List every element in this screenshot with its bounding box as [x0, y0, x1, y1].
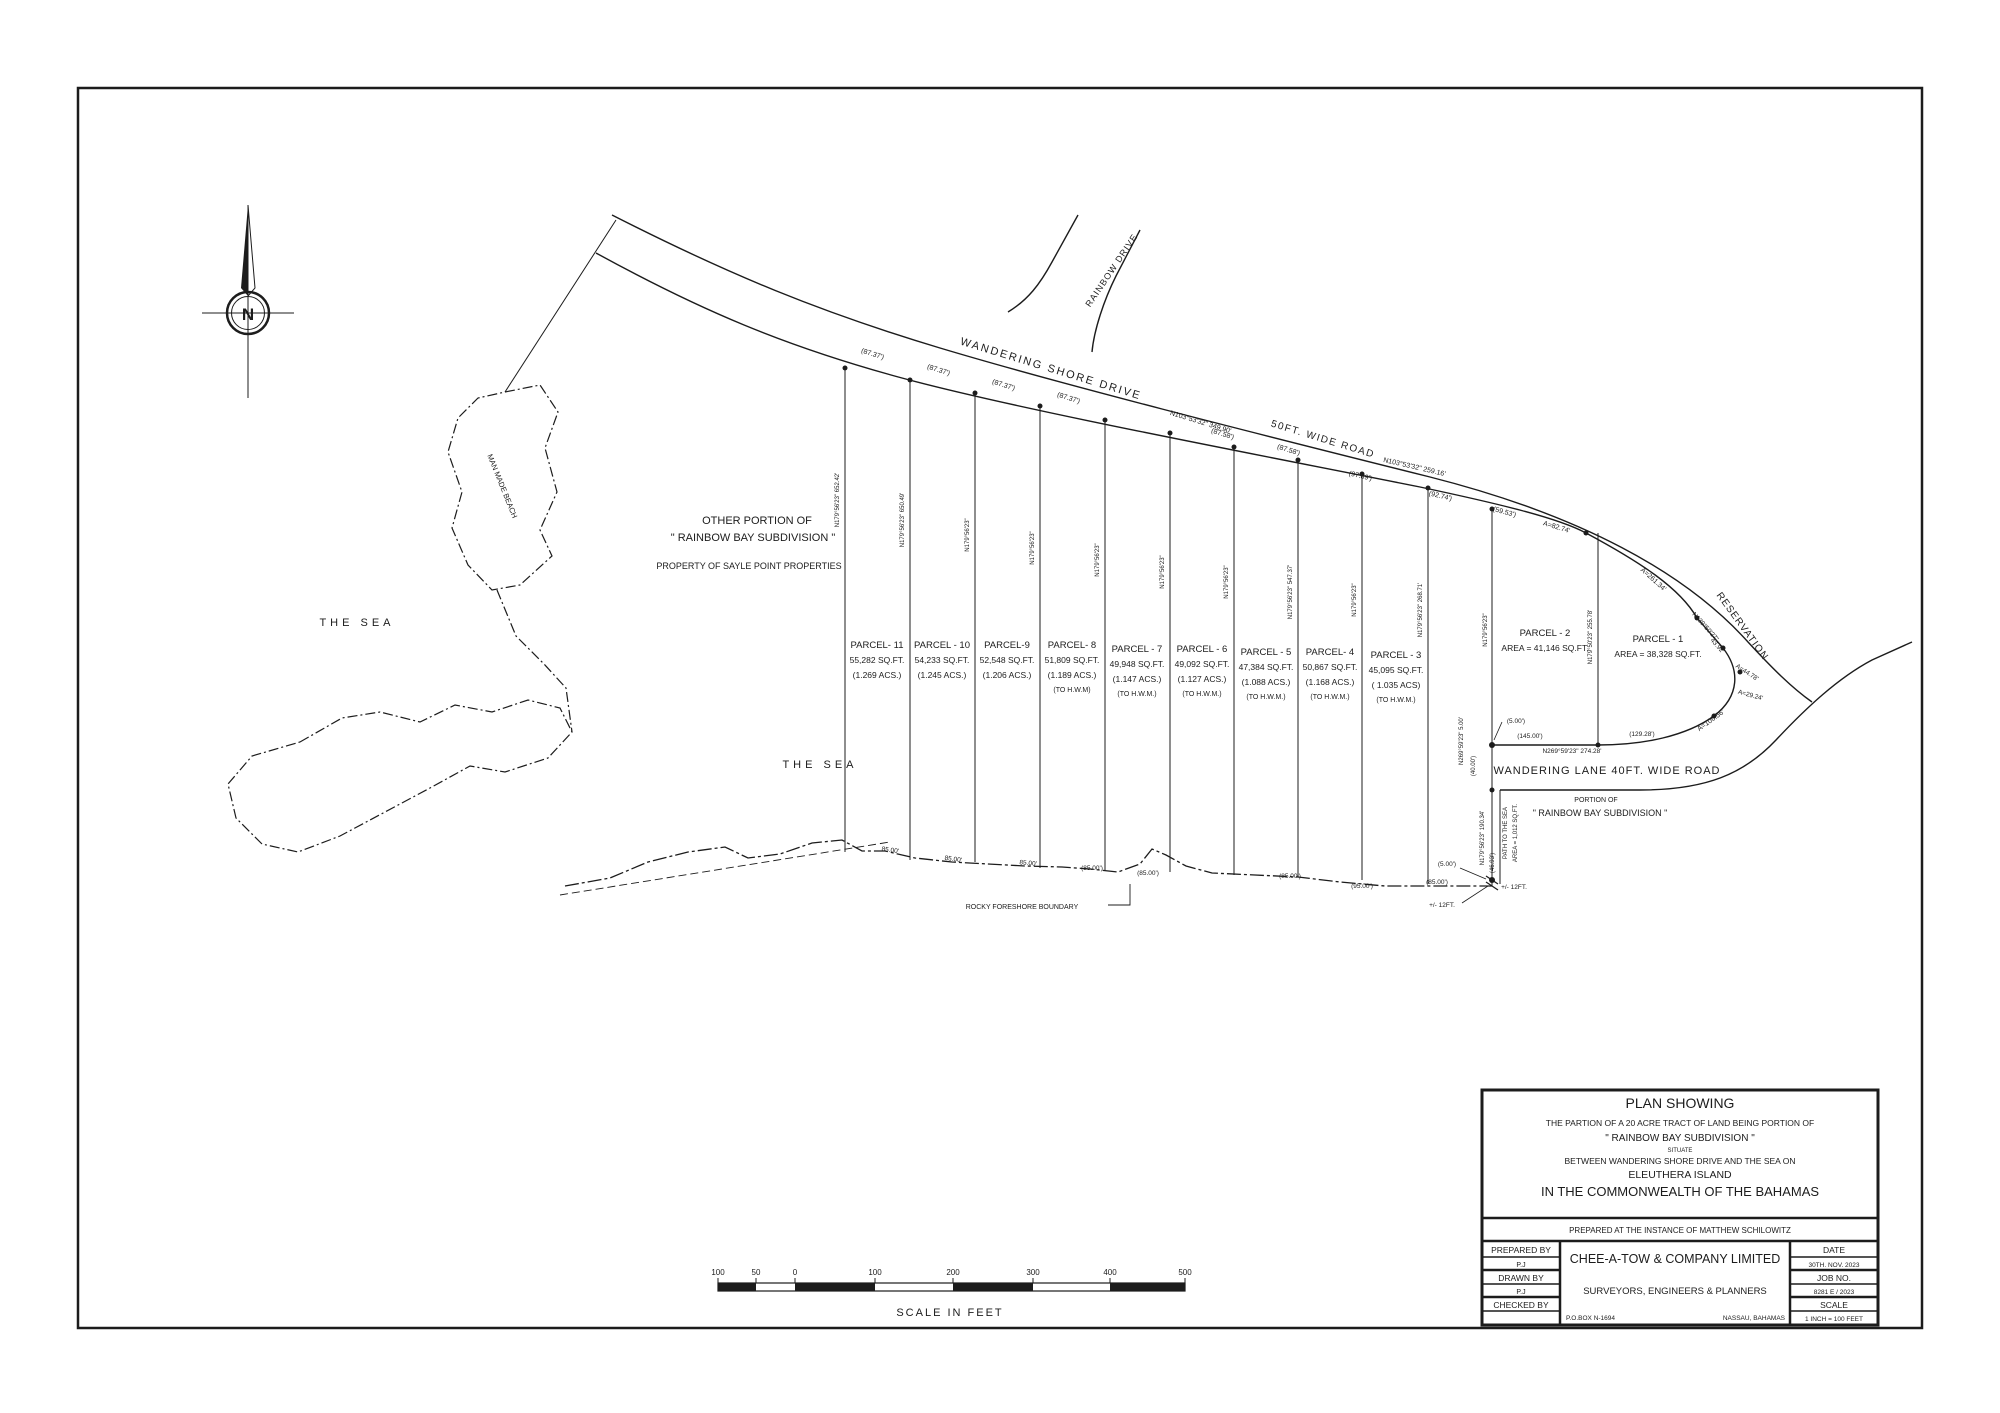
portion-subdivision-label: " RAINBOW BAY SUBDIVISION "	[1533, 808, 1668, 818]
parcel-area: 47,384 SQ.FT.	[1239, 662, 1294, 672]
parcel-label-block: PARCEL - 345,095 SQ.FT.( 1.035 ACS)(TO H…	[1369, 650, 1424, 704]
frontage-dim: (87.58')	[1276, 444, 1301, 458]
parcel-label-block: PARCEL- 450,867 SQ.FT.(1.168 ACS.)(TO H.…	[1303, 647, 1358, 701]
title-line3: SITUATE	[1668, 1148, 1693, 1154]
side-bearing: N179°56'23"	[1030, 531, 1036, 564]
parcel-area: AREA = 38,328 SQ.FT.	[1614, 649, 1701, 659]
parcel-name: PARCEL - 6	[1177, 644, 1228, 655]
parcel-label-block: PARCEL- 851,809 SQ.FT.(1.189 ACS.)(TO H.…	[1045, 640, 1100, 694]
scale-tick-label: 300	[1026, 1268, 1040, 1277]
side-bearing: N179°56'23" 650.49'	[900, 493, 906, 548]
lane-end-bearing: N269°59'23" 5.00'	[1459, 717, 1465, 765]
path-bearing: N179°56'23" 190.34'	[1480, 811, 1486, 866]
title-line5: ELEUTHERA ISLAND	[1628, 1169, 1732, 1181]
parcel-hwm-note: (TO H.W.M.)	[1182, 691, 1221, 698]
title-block: PLAN SHOWING THE PARTION OF A 20 ACRE TR…	[1482, 1090, 1878, 1325]
company-name: CHEE-A-TOW & COMPANY LIMITED	[1570, 1252, 1780, 1266]
scale-value: 1 INCH = 100 FEET	[1805, 1316, 1863, 1323]
title-line2: " RAINBOW BAY SUBDIVISION "	[1605, 1133, 1755, 1144]
shore-dim: 85.00'	[881, 846, 899, 855]
other-portion-line1: OTHER PORTION OF	[702, 515, 812, 527]
parcel-hwm-note: (TO H.W.M.)	[1376, 697, 1415, 704]
parcel-area: 49,092 SQ.FT.	[1175, 659, 1230, 669]
lane-dim: (5.00')	[1507, 718, 1525, 725]
parcel-area: 51,809 SQ.FT.	[1045, 655, 1100, 665]
date-value: 30TH. NOV. 2023	[1808, 1262, 1859, 1269]
lane-dim: (129.28')	[1629, 731, 1654, 738]
side-bearing: N179°56'23" 547.37'	[1288, 565, 1294, 620]
parcel-area: 52,548 SQ.FT.	[980, 655, 1035, 665]
frontage-dim: (87.37')	[860, 348, 885, 362]
shore-dim: (85.00')	[1426, 879, 1448, 886]
parcel-hwm-note: (TO H.W.M.)	[1117, 691, 1156, 698]
rocky-foreshore-leader	[1108, 884, 1130, 905]
instance-note: PREPARED AT THE INSTANCE OF MATTHEW SCHI…	[1569, 1226, 1791, 1235]
shore-note: +/- 12FT.	[1429, 902, 1455, 909]
parcel-acres: (1.189 ACS.)	[1048, 670, 1097, 680]
side-bearing: N179°56'23"	[1352, 583, 1358, 616]
parcel-labels: PARCEL- 1155,282 SQ.FT.(1.269 ACS.)PARCE…	[850, 628, 1702, 704]
parcel-acres: (1.269 ACS.)	[853, 670, 902, 680]
parcel-area: 45,095 SQ.FT.	[1369, 665, 1424, 675]
parcel-acres: (1.088 ACS.)	[1242, 677, 1291, 687]
compass-needle-left	[241, 205, 248, 296]
survey-points	[843, 366, 1743, 884]
tract-west-boundary	[505, 220, 616, 392]
scale-bar: 100500100200300400500 SCALE IN FEET	[711, 1268, 1192, 1319]
parcel-area: 50,867 SQ.FT.	[1303, 662, 1358, 672]
job-no-label: JOB NO.	[1817, 1273, 1851, 1283]
prepared-by-value: P.J	[1516, 1262, 1525, 1269]
portion-of-label: PORTION OF	[1574, 797, 1617, 804]
parcel-area: AREA = 41,146 SQ.FT.	[1501, 643, 1588, 653]
parcel-name: PARCEL-9	[984, 640, 1030, 651]
chord-dim: 43.92'	[1709, 637, 1726, 655]
scale-bar-filled-segments	[718, 1283, 1185, 1291]
parcel-label-block: PARCEL - 749,948 SQ.FT.(1.147 ACS.)(TO H…	[1110, 644, 1165, 698]
side-bearing: N179°56'23"	[965, 518, 971, 551]
parcel-label-block: PARCEL - 1054,233 SQ.FT.(1.245 ACS.)	[914, 640, 970, 680]
parcel-acres: ( 1.035 ACS)	[1372, 680, 1421, 690]
shore-dim: (95.00')	[1351, 883, 1373, 890]
side-bearing: N179°56'23"	[1095, 543, 1101, 576]
parcel-label-block: PARCEL - 1AREA = 38,328 SQ.FT.	[1614, 634, 1701, 659]
parcel-area: 54,233 SQ.FT.	[915, 655, 970, 665]
date-label: DATE	[1823, 1245, 1845, 1255]
job-no-value: 8281 E / 2023	[1814, 1289, 1855, 1296]
side-bearing: N179°56'23"	[1160, 555, 1166, 588]
side-bearing: N179°56'23" 652.42'	[835, 473, 841, 528]
parcel-name: PARCEL - 1	[1633, 634, 1684, 645]
chord-bearing: N139°50'27"	[1690, 611, 1721, 644]
title-line4: BETWEEN WANDERING SHORE DRIVE AND THE SE…	[1565, 1156, 1796, 1166]
wandering-shore-drive-label: WANDERING SHORE DRIVE	[959, 336, 1143, 403]
the-sea-label: THE SEA	[782, 759, 857, 771]
frontage-dim: (87.37')	[1056, 392, 1081, 406]
sayle-point-label: PROPERTY OF SAYLE POINT PROPERTIES	[656, 561, 841, 571]
the-sea-label: THE SEA	[319, 617, 394, 629]
parcel-acres: (1.206 ACS.)	[983, 670, 1032, 680]
scale-tick-label: 500	[1178, 1268, 1192, 1277]
side-bearing: N179°50'23" 255.78'	[1588, 610, 1594, 665]
parcel-name: PARCEL- 11	[851, 640, 904, 651]
parcel-acres: (1.147 ACS.)	[1113, 674, 1162, 684]
parcel-hwm-note: (TO H.W.M.)	[1310, 694, 1349, 701]
drawn-by-label: DRAWN BY	[1498, 1273, 1544, 1283]
side-bearing: N179°56'23" 268.71'	[1418, 583, 1424, 638]
parcel-name: PARCEL- 8	[1048, 640, 1096, 651]
scale-caption: SCALE IN FEET	[896, 1307, 1003, 1319]
rainbow-drive-west-edge	[1008, 215, 1078, 312]
frontage-dim: (97.89')	[1348, 470, 1372, 482]
scale-tick-label: 0	[793, 1268, 798, 1277]
scale-tick-label: 200	[946, 1268, 960, 1277]
drawn-by-value: P.J	[1516, 1289, 1525, 1296]
compass-north-arrow: N	[202, 205, 294, 398]
parcel-acres: (1.127 ACS.)	[1178, 674, 1227, 684]
compass-needle-right	[248, 205, 255, 296]
frontage-dim: (87.37')	[926, 364, 951, 378]
rainbow-drive-label: RAINBOW DRIVE	[1083, 232, 1139, 309]
scale-label: SCALE	[1820, 1300, 1848, 1310]
parcel-name: PARCEL- 4	[1306, 647, 1354, 658]
compass-n-label: N	[242, 305, 254, 324]
side-bearing: N179°56'23"	[1483, 613, 1489, 646]
rocky-foreshore-label: ROCKY FORESHORE BOUNDARY	[966, 904, 1079, 911]
parcel-label-block: PARCEL - 547,384 SQ.FT.(1.088 ACS.)(TO H…	[1239, 647, 1294, 701]
shore-dim: (85.00')	[1081, 865, 1103, 872]
parcel-hwm-note: (TO H.W.M)	[1053, 687, 1090, 694]
title-line6: IN THE COMMONWEALTH OF THE BAHAMAS	[1541, 1184, 1819, 1199]
parcel-name: PARCEL - 10	[914, 640, 970, 651]
lane-5ft-leader	[1494, 722, 1502, 740]
wandering-shore-drive-inner-edge	[596, 253, 1735, 745]
other-portion-line2: " RAINBOW BAY SUBDIVISION "	[671, 532, 836, 544]
shore-5ft-leader	[1460, 868, 1486, 879]
parcel-area: 55,282 SQ.FT.	[850, 655, 905, 665]
curve-dim: A=106.56'	[1696, 709, 1726, 733]
parcel-acres: (1.245 ACS.)	[918, 670, 967, 680]
parcel-hwm-note: (TO H.W.M.)	[1246, 694, 1285, 701]
parcel-name: PARCEL - 3	[1371, 650, 1422, 661]
parcel-label-block: PARCEL- 1155,282 SQ.FT.(1.269 ACS.)	[850, 640, 905, 680]
dimension-labels: WANDERING SHORE DRIVE50FT. WIDE ROADRAIN…	[319, 232, 1770, 911]
road-lines	[596, 215, 1912, 790]
scale-tick-label: 50	[752, 1268, 761, 1277]
parcel-label-block: PARCEL - 649,092 SQ.FT.(1.127 ACS.)(TO H…	[1175, 644, 1230, 698]
frontage-dim: (92.74')	[1428, 490, 1452, 502]
shore-dim: (85.00')	[1279, 873, 1301, 880]
lane-dim: (145.00')	[1517, 733, 1542, 740]
company-pobox: P.O.BOX N-1694	[1566, 1315, 1615, 1322]
scale-tick-label: 400	[1103, 1268, 1117, 1277]
wandering-shore-drive-outer-edge	[612, 215, 1812, 702]
survey-plan-sheet: N	[0, 0, 2000, 1413]
parcel-name: PARCEL - 5	[1241, 647, 1292, 658]
shore-dim: (85.00')	[1137, 870, 1159, 877]
shore-dim: (5.00')	[1438, 861, 1456, 868]
straight-reference-line	[560, 842, 890, 895]
curve-dim: A=29.24'	[1737, 689, 1764, 702]
wandering-lane-label: WANDERING LANE 40FT. WIDE ROAD	[1493, 765, 1720, 777]
scale-bar-ticks: 100500100200300400500	[711, 1268, 1192, 1283]
lane-end-dim: (40.00')	[1471, 756, 1477, 776]
path-dim: (46.93')	[1490, 853, 1496, 873]
shore-dim: 85.00'	[944, 855, 962, 864]
frontage-dim: (87.37')	[991, 379, 1016, 393]
checked-by-label: CHECKED BY	[1493, 1300, 1549, 1310]
parcel-area: 49,948 SQ.FT.	[1110, 659, 1165, 669]
fifty-ft-wide-road-label: 50FT. WIDE ROAD	[1269, 419, 1376, 461]
company-city: NASSAU, BAHAMAS	[1723, 1315, 1786, 1322]
12ft-leader	[1462, 886, 1488, 903]
company-subtitle: SURVEYORS, ENGINEERS & PLANNERS	[1583, 1286, 1767, 1297]
scale-tick-label: 100	[868, 1268, 882, 1277]
side-bearing: N179°56'23"	[1224, 565, 1230, 598]
lane-bearing: N269°59'23" 274.28'	[1542, 747, 1601, 755]
parcel-label-block: PARCEL-952,548 SQ.FT.(1.206 ACS.)	[980, 640, 1035, 680]
curve-dim: A=82.74'	[1542, 520, 1570, 535]
shore-note: +/- 12FT.	[1501, 884, 1527, 891]
title-line1: THE PARTION OF A 20 ACRE TRACT OF LAND B…	[1546, 1118, 1814, 1128]
parcel-acres: (1.168 ACS.)	[1306, 677, 1355, 687]
prepared-by-label: PREPARED BY	[1491, 1245, 1551, 1255]
parcel-name: PARCEL - 7	[1112, 644, 1163, 655]
man-made-beach-label: MAN MADE BEACH	[485, 453, 519, 520]
plan-title: PLAN SHOWING	[1626, 1095, 1735, 1111]
survey-drawing: N	[0, 0, 2000, 1413]
path-area-label: AREA = 1,012 SQ.FT.	[1513, 804, 1519, 863]
parcel-label-block: PARCEL - 2AREA = 41,146 SQ.FT.	[1501, 628, 1588, 653]
shore-dim: 85.00'	[1019, 859, 1037, 867]
rocky-outcrop-outline	[228, 700, 572, 852]
parcel-name: PARCEL - 2	[1520, 628, 1571, 639]
scale-tick-label: 100	[711, 1268, 725, 1277]
path-label: PATH TO THE SEA	[1503, 807, 1509, 859]
coastal-boundaries	[228, 220, 1492, 895]
